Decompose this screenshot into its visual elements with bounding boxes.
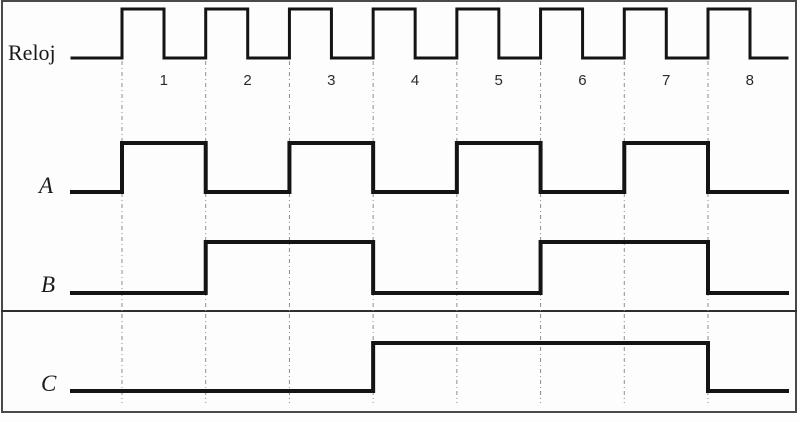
cycle-number: 1	[160, 72, 168, 89]
waveform-canvas: 12345678	[0, 0, 800, 422]
signal-c-waveform	[72, 343, 787, 391]
cycle-number: 7	[662, 72, 670, 89]
cycle-number: 6	[578, 72, 586, 89]
cycle-number: 4	[411, 72, 419, 89]
signal-a-waveform	[72, 143, 787, 192]
cycle-number: 8	[746, 72, 754, 89]
timing-diagram: Reloj A B C 12345678	[0, 0, 800, 422]
signal-b-waveform	[72, 242, 787, 293]
clock-waveform	[72, 9, 787, 58]
cycle-number: 5	[495, 72, 503, 89]
cycle-number: 3	[327, 72, 335, 89]
cycle-number: 2	[243, 72, 251, 89]
